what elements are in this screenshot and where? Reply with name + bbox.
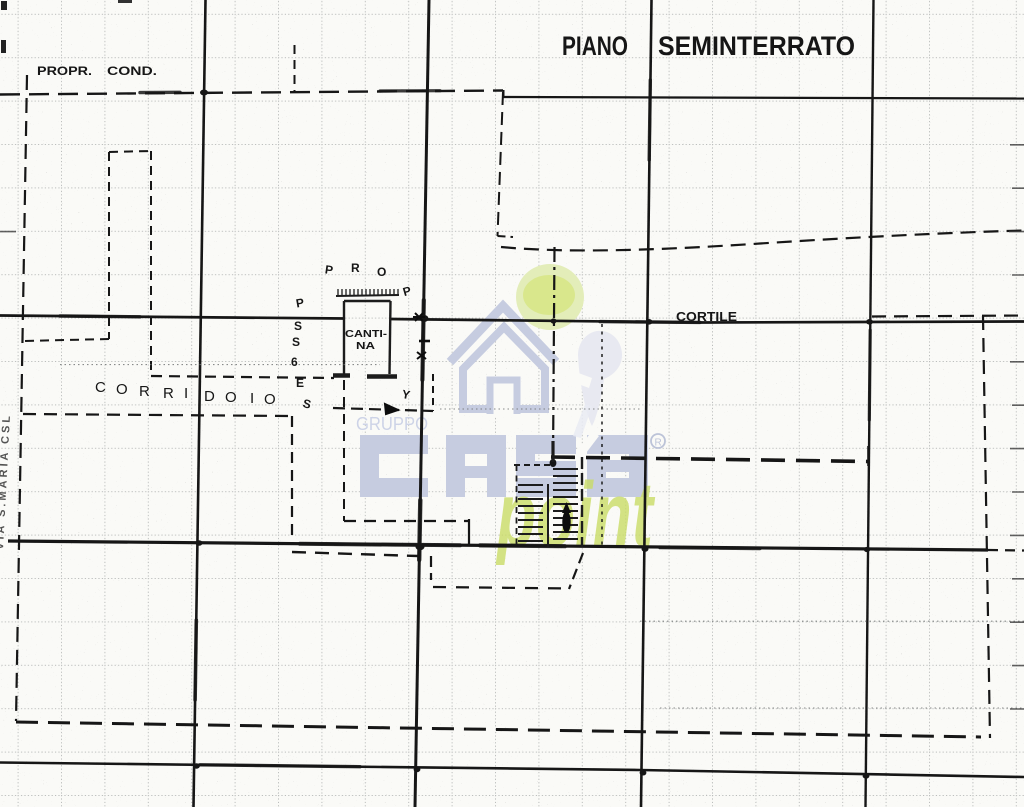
svg-text:I: I <box>184 385 188 402</box>
svg-text:O: O <box>264 391 276 408</box>
svg-text:COND.: COND. <box>107 64 157 78</box>
svg-text:O: O <box>116 381 128 398</box>
svg-text:O: O <box>377 265 386 279</box>
svg-text:point: point <box>495 464 655 566</box>
svg-text:6: 6 <box>291 355 298 369</box>
svg-text:CORTILE: CORTILE <box>676 309 737 324</box>
svg-text:NA: NA <box>356 340 376 352</box>
svg-text:R: R <box>139 383 150 400</box>
svg-text:PROPR.: PROPR. <box>37 64 92 78</box>
svg-text:R: R <box>351 261 360 275</box>
svg-text:I: I <box>250 390 254 407</box>
svg-text:O: O <box>225 389 237 406</box>
svg-text:E: E <box>296 376 304 390</box>
svg-text:PIANO: PIANO <box>562 31 628 61</box>
svg-text:S: S <box>292 335 300 349</box>
svg-text:D: D <box>204 388 215 405</box>
svg-text:SEMINTERRATO: SEMINTERRATO <box>658 31 855 61</box>
svg-text:S: S <box>294 319 302 333</box>
svg-text:GRUPPO: GRUPPO <box>356 414 428 434</box>
svg-text:CANTI-: CANTI- <box>345 328 388 340</box>
svg-text:R: R <box>163 385 174 402</box>
svg-text:R: R <box>655 438 662 449</box>
svg-text:C: C <box>95 379 106 396</box>
